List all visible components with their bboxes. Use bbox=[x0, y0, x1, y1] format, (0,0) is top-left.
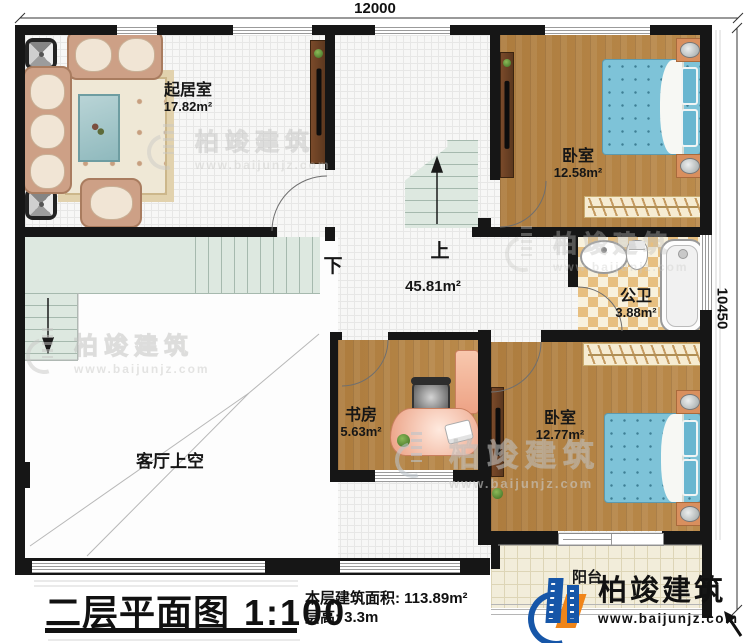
bathroom-label: 公卫 3.88m² bbox=[596, 288, 676, 321]
watermark-logo-icon bbox=[505, 224, 545, 272]
study-label: 书房 5.63m² bbox=[311, 407, 411, 440]
dimension-right: 10450 bbox=[714, 279, 731, 339]
stairs-down-label: 下 bbox=[318, 251, 348, 278]
stairs-up-label: 上 bbox=[425, 236, 455, 263]
brand-name: 柏竣建筑 bbox=[598, 576, 739, 608]
brand-website: www.baijunjz.com bbox=[598, 611, 739, 626]
plan-line-overlay bbox=[0, 0, 750, 643]
bedroom1-label: 卧室 12.58m² bbox=[528, 148, 628, 181]
watermark-logo-icon bbox=[26, 326, 66, 374]
bedroom2-label: 卧室 12.77m² bbox=[510, 410, 610, 443]
watermark: 柏竣建筑 www.baijunjz.com bbox=[147, 122, 331, 172]
watermark: 柏竣建筑 www.baijunjz.com bbox=[26, 326, 210, 376]
watermark-logo-icon bbox=[147, 122, 187, 170]
dimension-top: 12000 bbox=[340, 0, 410, 17]
void-label: 客厅上空 bbox=[110, 447, 230, 472]
hall-area-label: 45.81m² bbox=[383, 278, 483, 295]
brand-logo: 柏竣建筑 www.baijunjz.com bbox=[528, 576, 739, 638]
brand-logo-icon bbox=[528, 576, 592, 638]
title-underline bbox=[45, 628, 297, 633]
watermark: 柏竣建筑 www.baijunjz.com bbox=[505, 224, 689, 274]
living-room-label: 起居室 17.82m² bbox=[138, 82, 238, 115]
floor-plan-page: 柏竣建筑 www.baijunjz.com 柏竣建筑 www.baijunjz.… bbox=[0, 0, 750, 643]
plan-info: 本层建筑面积: 113.89m² 层高: 3.3m bbox=[305, 589, 468, 627]
